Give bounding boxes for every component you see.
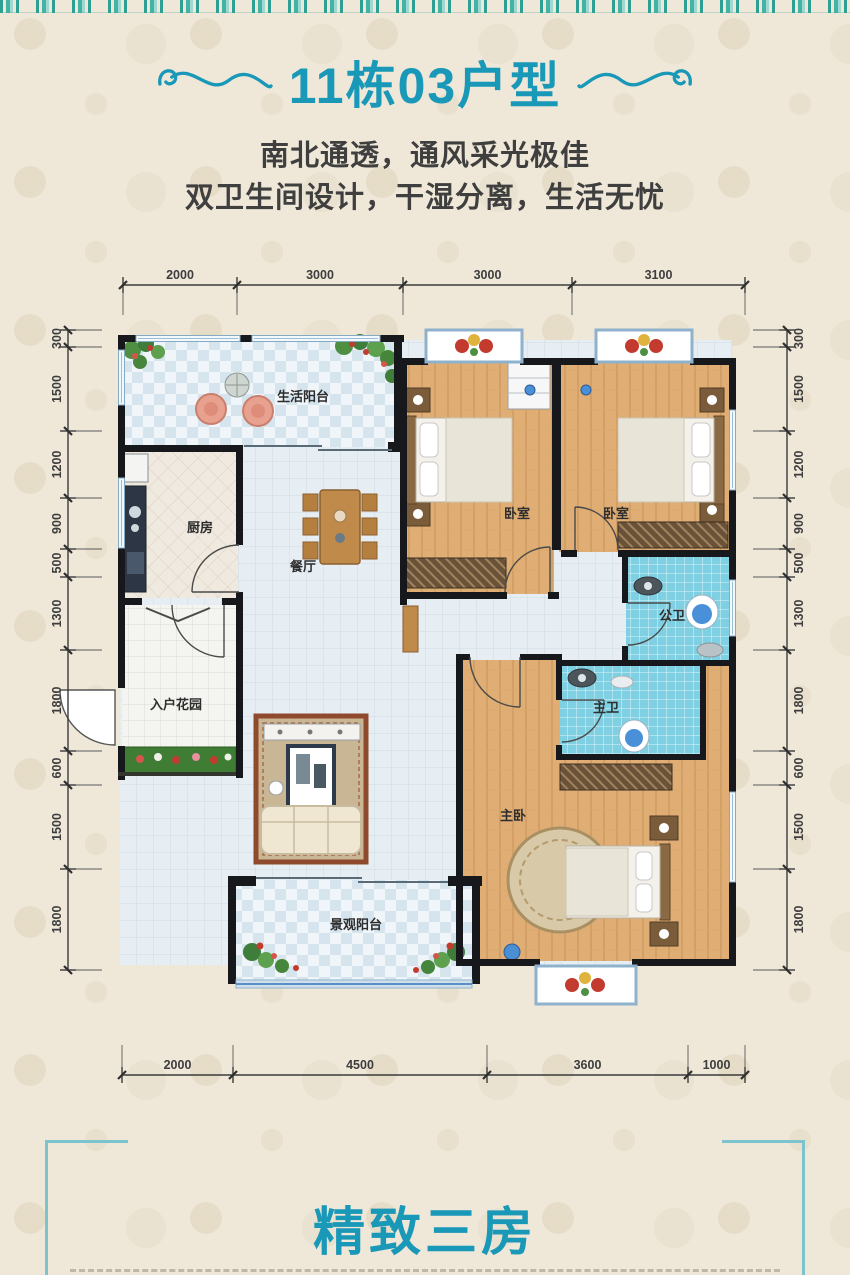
dim-label: 1200 [50,451,64,479]
dim-label: 900 [50,513,64,534]
wardrobe [560,764,672,790]
living-room-furniture [256,716,366,862]
room-label: 主卧 [500,808,526,823]
dim-label: 4500 [346,1058,374,1072]
room-label: 生活阳台 [277,389,329,404]
kitchen-counter [124,454,148,592]
dim-label: 1800 [792,687,806,715]
bottom-dashed-line [70,1269,780,1272]
dimension-left: 300150012009005001300180060015001800 [50,326,102,974]
dimension-bottom: 2000450036001000 [118,1045,749,1083]
wardrobe [618,522,728,548]
dim-label: 3600 [574,1058,602,1072]
dim-label: 2000 [164,1058,192,1072]
floor-entry-garden [122,605,236,747]
dim-label: 1000 [703,1058,731,1072]
dim-label: 3000 [474,268,502,282]
room-label: 厨房 [187,520,213,535]
flourish-right-icon [577,60,695,104]
dim-label: 1500 [50,375,64,403]
dim-label: 1300 [792,600,806,628]
room-label: 主卫 [593,700,619,715]
dim-label: 300 [50,328,64,349]
room-label: 景观阳台 [330,917,382,932]
bay-window-master [536,966,636,1004]
dining-table-set [303,490,377,564]
wardrobe [406,558,506,588]
floor-living-balcony [122,342,396,447]
room-label: 餐厅 [289,559,316,574]
page-title: 11栋03户型 [289,46,561,118]
dim-label: 1500 [50,813,64,841]
dim-label: 900 [792,513,806,534]
shoe-cabinet [403,606,418,652]
subtitle-line-1: 南北通透，通风采光极佳 [0,132,850,174]
dim-label: 3000 [306,268,334,282]
room-label: 卧室 [504,506,530,521]
decorative-top-border [0,0,850,13]
subtitle-line-2: 双卫生间设计，干湿分离，生活无忧 [0,174,850,216]
dimension-top: 2000300030003100 [119,268,749,315]
dim-label: 1200 [792,451,806,479]
dim-label: 1500 [792,813,806,841]
floorplan-poster: 11栋03户型 南北通透，通风采光极佳 双卫生间设计，干湿分离，生活无忧 [0,0,850,1275]
floor-plan: 生活阳台厨房餐厅卧室卧室公卫主卫主卧入户花园景观阳台 2000300030003… [0,240,850,1100]
room-label: 入户花园 [150,697,202,712]
footer-title: 精致三房 [0,1190,850,1265]
dim-label: 500 [50,553,64,574]
dim-label: 500 [792,553,806,574]
title-row: 11栋03户型 [0,46,850,118]
dim-label: 300 [792,328,806,349]
dimension-right: 300150012009005001300180060015001800 [753,326,806,974]
dim-label: 1800 [50,906,64,934]
bedroom-1-furniture [406,388,512,588]
dim-label: 1300 [50,600,64,628]
room-label: 卧室 [603,506,629,521]
dim-label: 600 [792,758,806,779]
bay-window-bedroom-2 [596,330,692,362]
dim-label: 1500 [792,375,806,403]
dim-label: 600 [50,758,64,779]
dim-label: 3100 [645,268,673,282]
room-label: 公卫 [659,608,685,623]
flourish-left-icon [155,60,273,104]
dim-label: 1800 [50,687,64,715]
bay-window-bedroom-1 [426,330,522,362]
dim-label: 2000 [166,268,194,282]
dim-label: 1800 [792,906,806,934]
